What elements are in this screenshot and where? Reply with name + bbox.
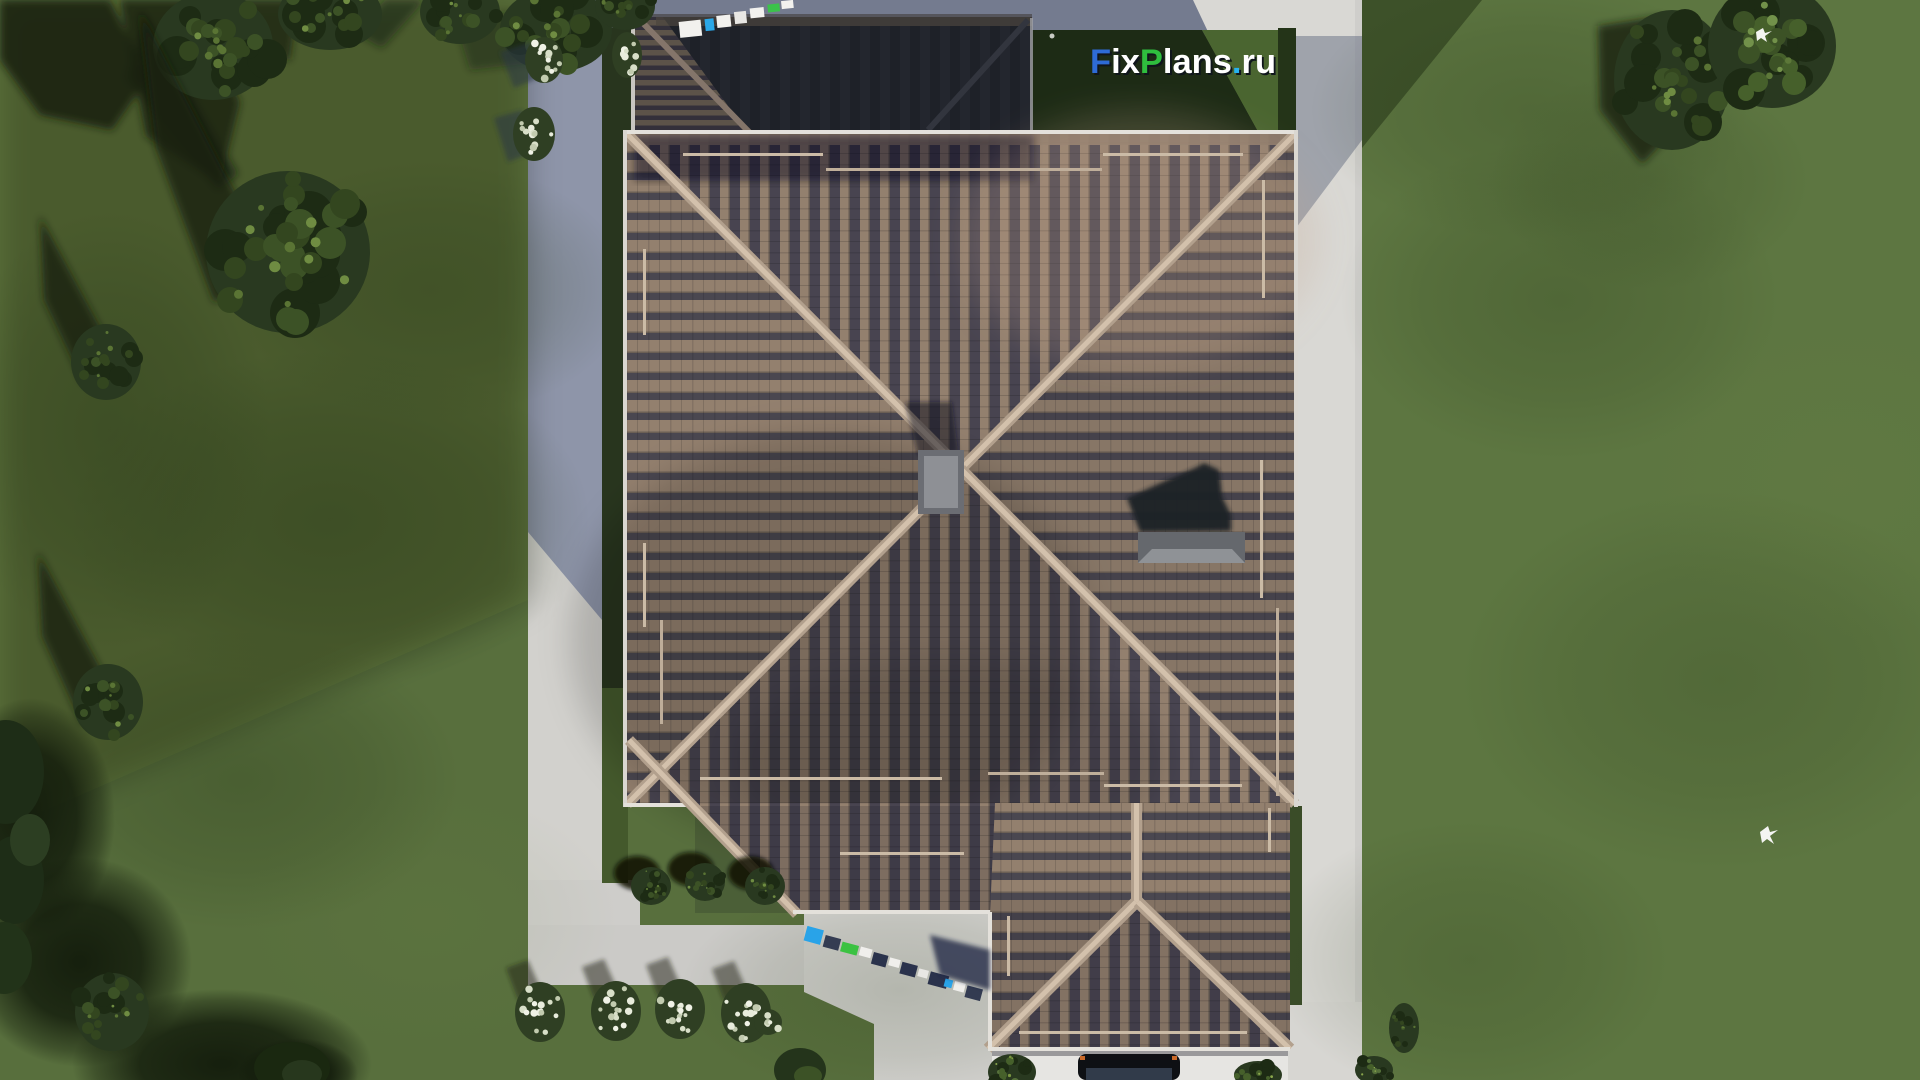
- svg-text:FixPlans.ruFixPlans.ru: FixPlans.ruFixPlans.ru: [1090, 43, 1278, 83]
